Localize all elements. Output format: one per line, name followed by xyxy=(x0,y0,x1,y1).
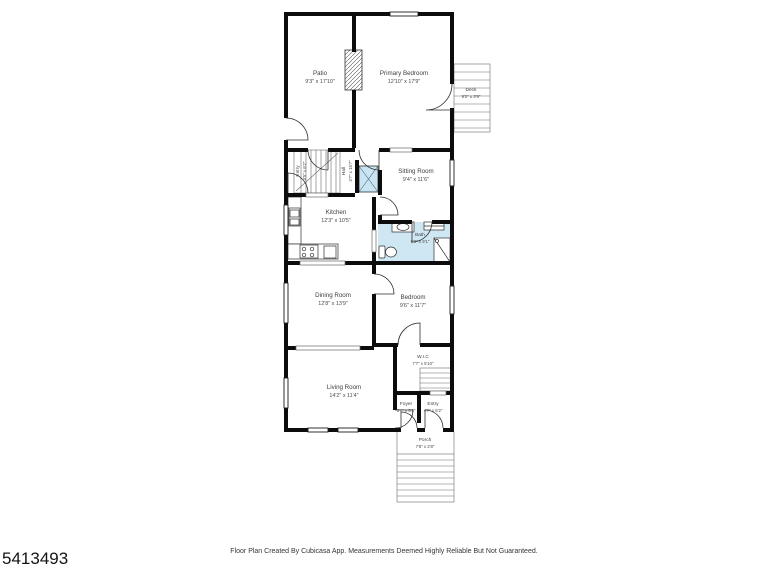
disclaimer-text: Floor Plan Created By Cubicasa App. Meas… xyxy=(0,548,768,555)
room-label-living-room-dims: 14'2" x 11'4" xyxy=(329,393,358,399)
floor-plan-drawing: Patio 9'3" x 17'10" Primary Bedroom 12'1… xyxy=(0,0,768,576)
room-label-bath-dims: 5'8" x 9'1" xyxy=(411,239,430,244)
room-label-primary-bedroom-name: Primary Bedroom xyxy=(380,70,428,77)
room-label-wic-name: W.I.C xyxy=(417,354,429,360)
room-label-hall-name: Hall xyxy=(341,167,347,175)
staircase-interior xyxy=(420,368,452,391)
room-label-entry-name: Entry xyxy=(427,401,439,407)
room-label-entry-dims: 4'7" x 5'2" xyxy=(424,408,443,413)
room-label-dining-room-dims: 12'8" x 13'9" xyxy=(318,301,348,307)
room-label-deck-dims: 9'2" x 3'9" xyxy=(462,94,481,99)
room-label-bath-name: Bath xyxy=(415,232,425,238)
room-label-bedroom-name: Bedroom xyxy=(400,294,425,301)
kitchen-fixtures xyxy=(288,197,338,259)
room-label-sitting-room-name: Sitting Room xyxy=(398,168,433,175)
room-label-primary-bedroom-dims: 12'10" x 17'9" xyxy=(388,79,421,85)
room-label-entry-upper-name: Entry xyxy=(295,165,301,177)
room-label-kitchen-name: Kitchen xyxy=(326,209,347,216)
room-label-porch-name: Porch xyxy=(419,437,432,443)
room-label-foyer-name: Foyer xyxy=(400,401,413,407)
room-label-foyer-dims: 3'1" x 5'2" xyxy=(397,408,416,413)
room-label-patio-dims: 9'3" x 17'10" xyxy=(305,79,335,85)
room-label-entry-upper-dims: 4'5" x 6'2" xyxy=(302,161,307,180)
room-label-wic-dims: 7'7" x 5'10" xyxy=(412,361,434,366)
room-label-deck-name: Deck xyxy=(466,87,478,93)
room-label-sitting-room-dims: 9'4" x 11'6" xyxy=(403,177,429,183)
room-label-bedroom-dims: 9'6" x 11'7" xyxy=(400,303,426,309)
floor-plan-page: Patio 9'3" x 17'10" Primary Bedroom 12'1… xyxy=(0,0,768,576)
room-label-hall-dims: 3'7" x 15'7" xyxy=(348,160,353,182)
room-label-porch-dims: 7'8" x 2'8" xyxy=(416,444,435,449)
room-label-dining-room-name: Dining Room xyxy=(315,292,351,299)
room-label-patio-name: Patio xyxy=(313,70,328,77)
room-label-living-room-name: Living Room xyxy=(327,384,361,391)
room-label-kitchen-dims: 12'3" x 10'5" xyxy=(321,218,351,224)
